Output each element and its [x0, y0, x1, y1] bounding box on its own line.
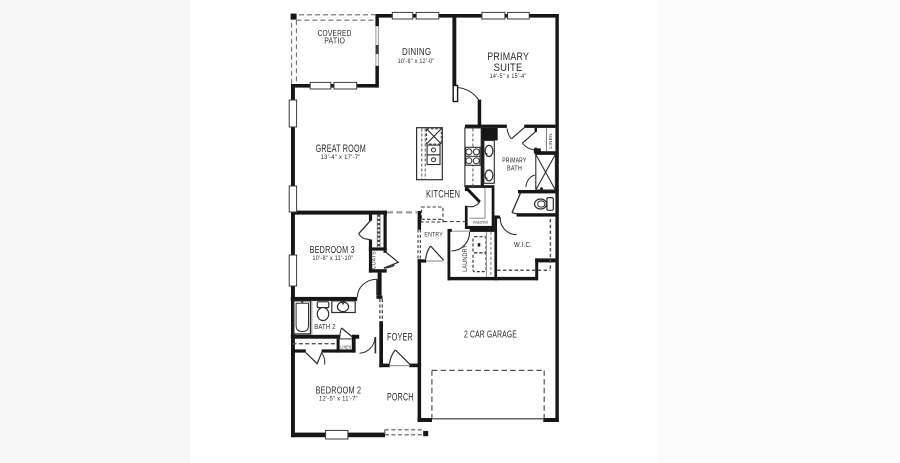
svg-text:PANTRY: PANTRY [473, 220, 488, 225]
svg-text:ENTRY: ENTRY [424, 232, 443, 238]
svg-text:10'-8" x 11'-10": 10'-8" x 11'-10" [312, 255, 353, 262]
svg-text:12'-5" x 11'-7": 12'-5" x 11'-7" [319, 395, 358, 402]
svg-text:BATH: BATH [507, 164, 522, 173]
svg-text:2 CAR GARAGE: 2 CAR GARAGE [464, 329, 517, 340]
svg-text:DINING: DINING [402, 47, 431, 58]
svg-text:PORCH: PORCH [387, 391, 414, 403]
svg-text:PATIO: PATIO [324, 35, 345, 45]
svg-text:13'-4" x 17'-7": 13'-4" x 17'-7" [321, 154, 361, 161]
svg-text:LINEN: LINEN [340, 345, 351, 350]
svg-text:FOYER: FOYER [387, 331, 413, 343]
svg-text:LAUNDRY: LAUNDRY [463, 245, 469, 272]
svg-text:KITCHEN: KITCHEN [426, 188, 460, 200]
svg-text:LINEN: LINEN [548, 133, 553, 149]
svg-text:COATS: COATS [371, 251, 377, 269]
svg-text:10'-8" x 12'-0": 10'-8" x 12'-0" [398, 58, 435, 65]
svg-text:BATH 2: BATH 2 [314, 322, 336, 331]
svg-text:14'-5" x 15'-4": 14'-5" x 15'-4" [490, 73, 527, 80]
svg-text:W.I.C.: W.I.C. [514, 242, 532, 249]
